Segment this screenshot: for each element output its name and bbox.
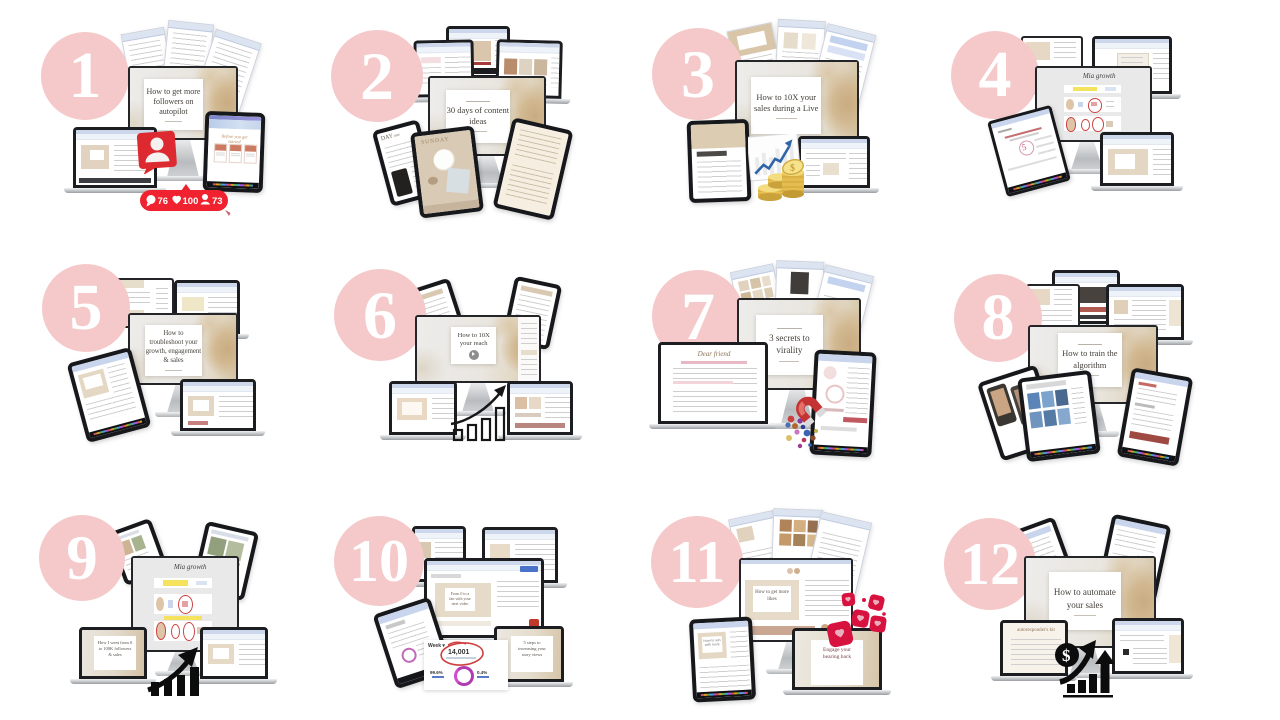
svg-text:$: $: [1062, 646, 1071, 665]
svg-text:$: $: [790, 163, 795, 174]
svg-text:100: 100: [183, 196, 199, 207]
svg-text:73: 73: [212, 196, 223, 207]
svg-text:76: 76: [158, 196, 169, 207]
